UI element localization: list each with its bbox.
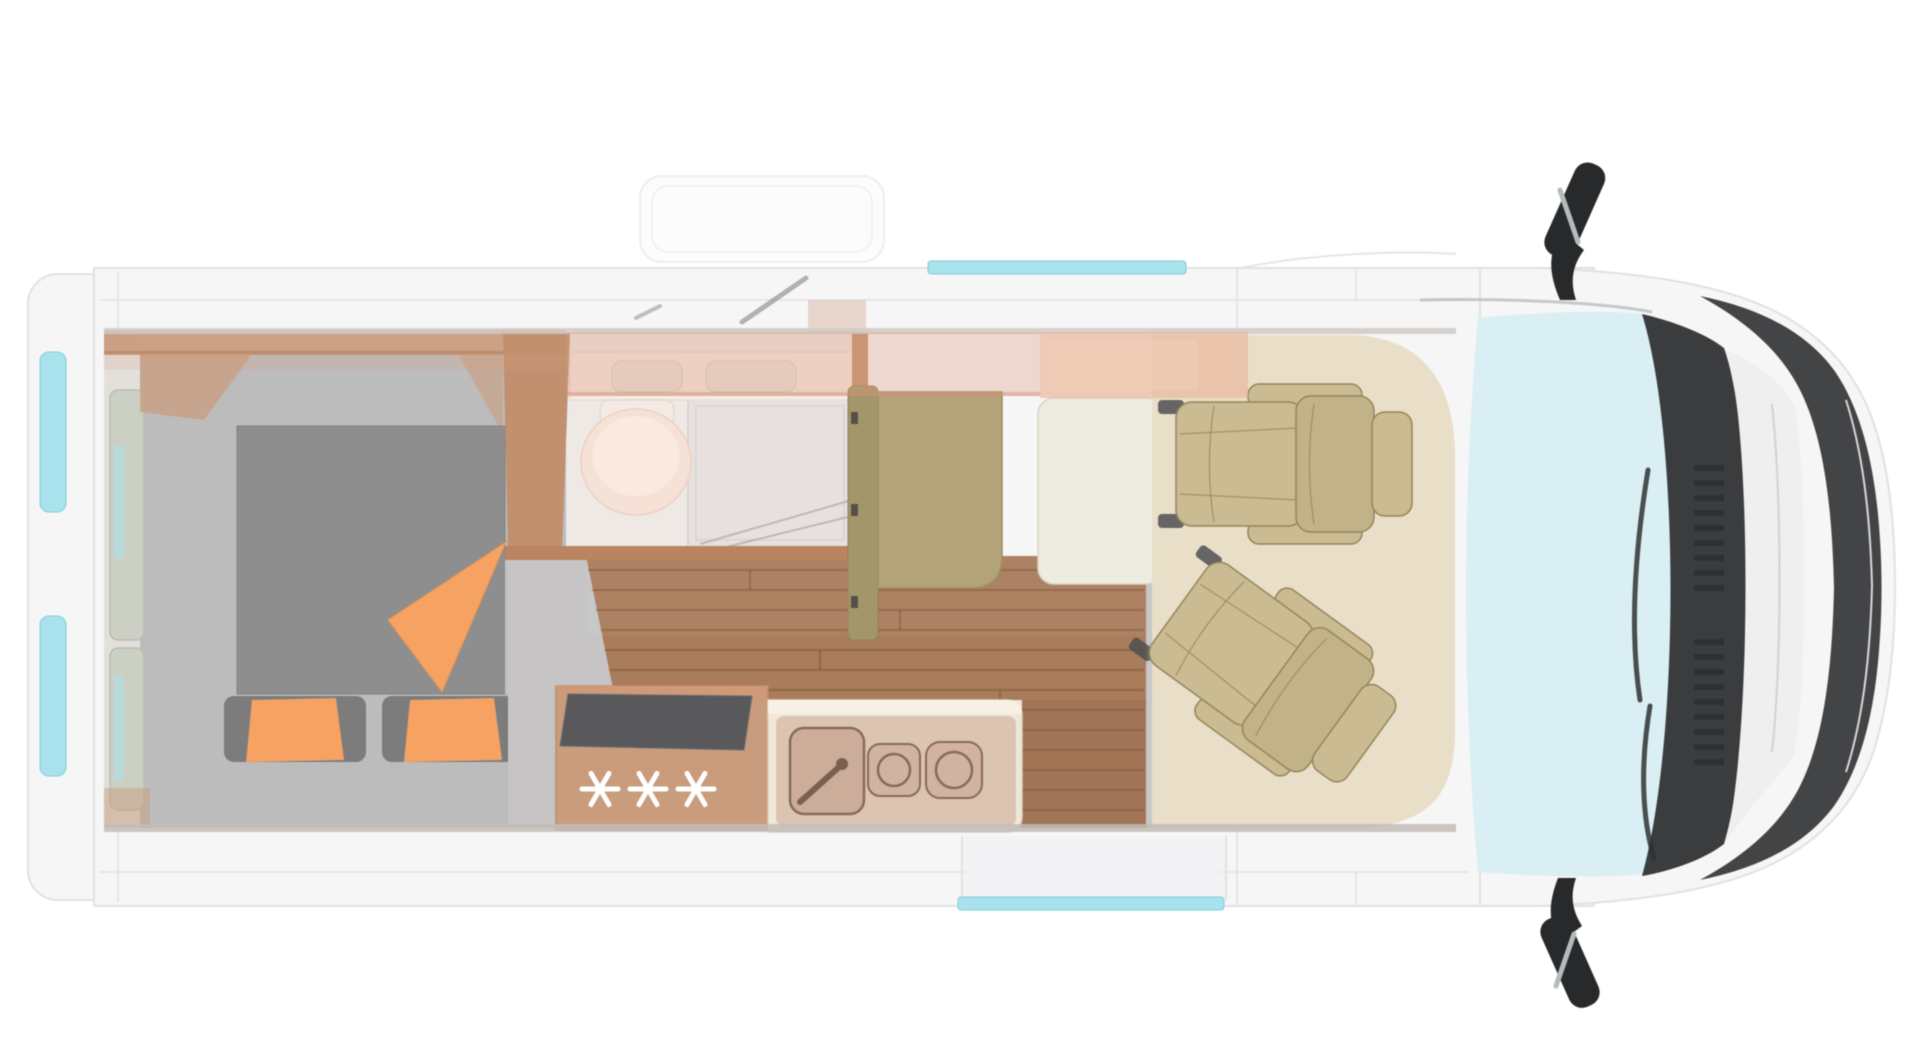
bench-hinge bbox=[851, 412, 858, 424]
dinette-bench bbox=[878, 392, 1002, 588]
bench-hinge bbox=[851, 596, 858, 608]
bed-pillow-left bbox=[224, 696, 366, 762]
fridge-worktop bbox=[560, 694, 752, 750]
mirror-head bbox=[1536, 912, 1604, 1013]
kitchen-unit-highlight bbox=[768, 700, 1022, 714]
bench-hinge bbox=[851, 504, 858, 516]
seat-headrest bbox=[1372, 412, 1412, 516]
wardrobe-shelf bbox=[808, 300, 866, 332]
sliding-door-seams bbox=[962, 836, 1226, 900]
floorplan-page: Camper van floor plan — top view bbox=[0, 0, 1920, 1048]
bathroom-wall-bottom bbox=[505, 546, 868, 560]
overhead-cabinet-face bbox=[1048, 340, 1198, 390]
cab-seat-upper bbox=[1158, 384, 1412, 544]
kitchen-sink bbox=[790, 728, 864, 814]
rear-window-strip-upper bbox=[40, 352, 66, 512]
rear-window-strip-lower bbox=[40, 616, 66, 776]
kitchen bbox=[556, 686, 1022, 832]
pillow-cushion-left bbox=[246, 698, 344, 762]
floor-mat-gap bbox=[1146, 556, 1152, 828]
pillow-cushion-right bbox=[404, 698, 502, 762]
dinette-table bbox=[1038, 398, 1162, 584]
overhead-lockers-edge bbox=[566, 392, 1040, 396]
rear-trim-bottom bbox=[104, 788, 150, 828]
interior-wall-bottom bbox=[104, 824, 1456, 832]
floorplan-canvas: Camper van floor plan — top view bbox=[0, 0, 1920, 1048]
overhead-bed-board bbox=[104, 354, 566, 370]
rear-bedroom bbox=[104, 330, 566, 828]
seat-backrest bbox=[1296, 396, 1374, 532]
hob-burner-right bbox=[926, 742, 982, 798]
interior bbox=[104, 278, 1456, 832]
top-window-strip bbox=[928, 261, 1186, 274]
rear-window-inner-lower bbox=[114, 676, 124, 780]
cab-interior bbox=[1118, 335, 1455, 829]
seat-cushion bbox=[1176, 402, 1304, 526]
rear-window-inner-upper bbox=[114, 446, 124, 558]
windshield bbox=[1466, 312, 1680, 877]
sink-faucet-base bbox=[836, 758, 848, 770]
bottom-window-strip bbox=[958, 897, 1224, 910]
rear-bed bbox=[237, 426, 505, 694]
mirror-head bbox=[1540, 158, 1610, 262]
roof-vent bbox=[640, 176, 884, 262]
shower-tray bbox=[688, 398, 852, 548]
overhead-lockers bbox=[566, 332, 1040, 396]
bed-pillow-right bbox=[382, 696, 524, 762]
hob-burner-left bbox=[868, 744, 920, 796]
